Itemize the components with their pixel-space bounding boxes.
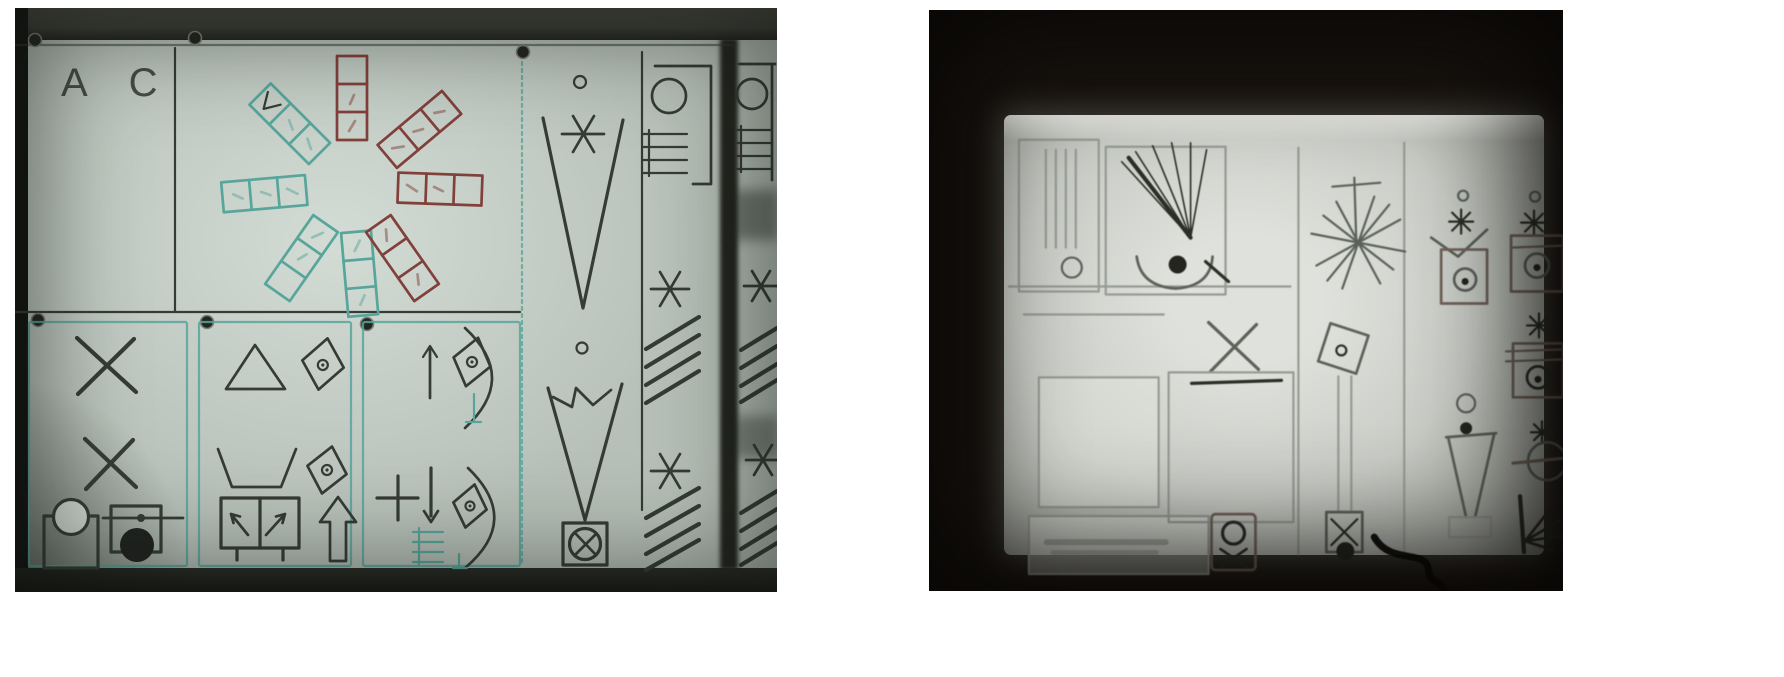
power-cable xyxy=(1374,537,1444,591)
star-pot-icon xyxy=(1506,313,1563,397)
boxed-bent-arrows-icon xyxy=(221,498,299,560)
closing-arc-icon xyxy=(465,468,494,568)
ruled-box-icon xyxy=(1019,140,1099,292)
star-crossed-circle-icon xyxy=(1513,421,1563,480)
bottom-panel-arrows-arcs xyxy=(363,322,520,568)
hatch-shading-icon xyxy=(741,491,777,565)
illegible-caption-line xyxy=(1051,550,1159,555)
teal-tick xyxy=(466,394,481,422)
bottom-panel-triangle-diamonds xyxy=(199,322,356,566)
zigzag-v-icon xyxy=(548,384,622,520)
hatch-shading-icon xyxy=(646,317,699,403)
bottom-panel-x-marks xyxy=(29,322,187,568)
open-trapezoid-icon xyxy=(218,449,296,487)
tally-strip-teal xyxy=(221,175,307,212)
tapered-v-icon xyxy=(543,118,623,308)
starburst-icon xyxy=(1311,178,1405,289)
left-photo: A C xyxy=(15,8,777,592)
brush-spray-box-icon xyxy=(1106,143,1229,295)
coil-column xyxy=(643,66,711,570)
dot-star-pot-icon xyxy=(1511,192,1563,292)
asterisk-icon xyxy=(651,454,689,488)
x-mark-icon xyxy=(1192,322,1282,383)
asterisk-icon xyxy=(562,116,604,152)
asterisk-icon xyxy=(651,272,689,306)
board-label: A C xyxy=(61,61,173,105)
funnel-with-dots-icon xyxy=(1446,394,1496,537)
asterisk-icon xyxy=(746,445,777,475)
x-mark-icon xyxy=(85,439,136,489)
caption-panel xyxy=(1029,516,1209,574)
down-arrow-icon xyxy=(424,468,438,522)
ray-fan-icon xyxy=(1520,496,1562,552)
crossed-box-circle-icon xyxy=(563,523,607,565)
small-circle-icon xyxy=(577,343,588,354)
triangle-icon xyxy=(226,345,285,389)
coil-bracket-icon xyxy=(643,66,711,184)
coil-bracket-icon xyxy=(737,64,775,180)
left-board-drawing: A C xyxy=(15,8,777,592)
diamond-with-dot-icon xyxy=(298,335,348,394)
plus-sign-icon xyxy=(377,476,418,520)
tally-strip-red xyxy=(397,173,482,206)
small-circle-icon xyxy=(574,76,586,88)
thin-up-arrow-icon xyxy=(423,346,437,398)
hatch-shading-icon xyxy=(741,328,777,402)
tally-strip-fan xyxy=(221,56,482,317)
tally-strip-red xyxy=(337,56,367,140)
screen-drawing xyxy=(929,10,1563,591)
square-plunger-dot-icon xyxy=(103,506,183,562)
page-background: A C xyxy=(0,0,1784,677)
tilted-square-dropline-icon xyxy=(1318,323,1368,560)
tally-strip-teal xyxy=(265,215,338,301)
tally-strip-teal xyxy=(249,83,330,164)
dot-star-pot-icon xyxy=(1431,191,1487,304)
tally-comb-icon xyxy=(413,528,443,564)
circle-on-square-icon xyxy=(44,500,98,569)
tally-strip-red xyxy=(378,91,462,168)
v-column xyxy=(543,76,623,565)
right-photo xyxy=(929,10,1563,591)
hatch-shading-icon xyxy=(646,488,699,570)
closing-arc-icon xyxy=(465,328,492,428)
coil-column-edge xyxy=(737,64,777,565)
asterisk-icon xyxy=(744,271,777,301)
diamond-with-dot-icon xyxy=(302,442,351,497)
x-mark-icon xyxy=(77,338,136,394)
blank-panel xyxy=(1039,377,1159,507)
panel-divider-lines xyxy=(15,45,733,566)
illegible-caption-line xyxy=(1044,539,1169,545)
folding-fan-icon xyxy=(1158,372,1304,522)
